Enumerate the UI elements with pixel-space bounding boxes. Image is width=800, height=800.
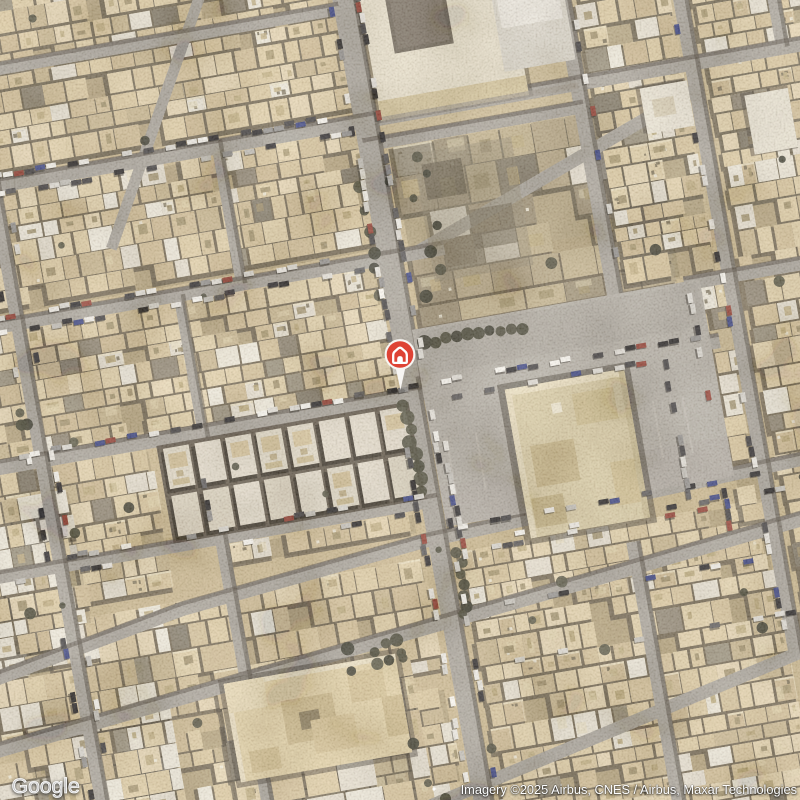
svg-text:Google: Google [12, 774, 80, 798]
svg-text:Imagery ©2025 Airbus, CNES / A: Imagery ©2025 Airbus, CNES / Airbus, Max… [461, 782, 797, 797]
